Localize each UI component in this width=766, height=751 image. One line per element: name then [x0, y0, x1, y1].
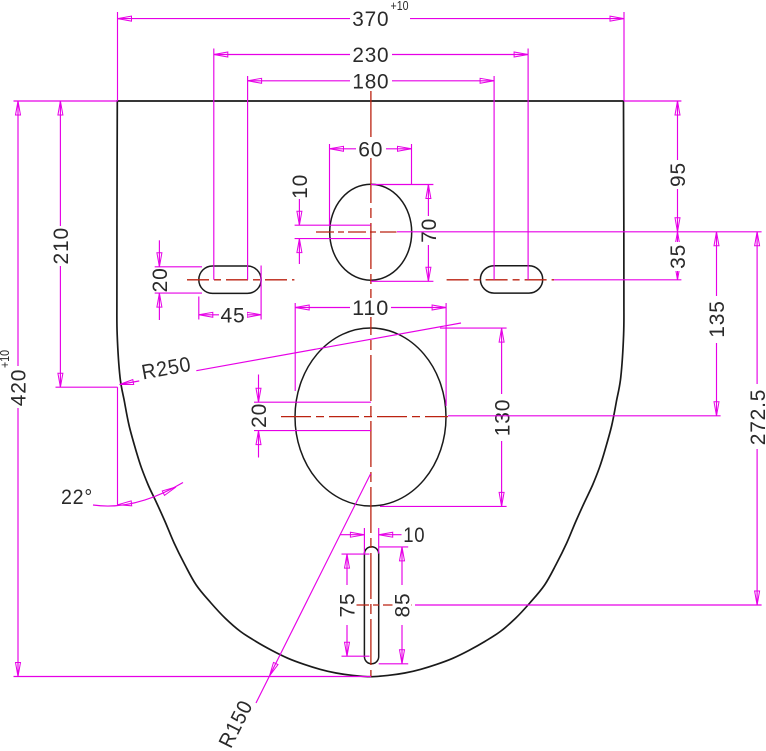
svg-text:45: 45 — [221, 304, 246, 327]
svg-text:10: 10 — [289, 174, 312, 199]
svg-text:135: 135 — [706, 300, 729, 337]
svg-text:85: 85 — [392, 593, 415, 618]
svg-text:180: 180 — [352, 70, 389, 93]
svg-text:230: 230 — [352, 44, 389, 67]
svg-text:420: 420 — [8, 369, 31, 406]
svg-text:60: 60 — [358, 138, 383, 161]
svg-text:110: 110 — [352, 297, 389, 320]
svg-text:+10: +10 — [391, 0, 409, 13]
svg-text:210: 210 — [50, 227, 73, 264]
svg-text:95: 95 — [667, 162, 690, 187]
svg-text:20: 20 — [248, 403, 271, 428]
svg-text:22°: 22° — [61, 486, 93, 509]
svg-text:370: 370 — [352, 8, 389, 31]
svg-text:20: 20 — [149, 267, 172, 292]
svg-text:130: 130 — [491, 399, 514, 436]
svg-text:+10: +10 — [0, 350, 12, 368]
svg-text:10: 10 — [403, 524, 425, 547]
svg-text:272.5: 272.5 — [747, 389, 766, 446]
svg-text:75: 75 — [337, 593, 360, 618]
svg-text:70: 70 — [418, 218, 441, 243]
svg-text:35: 35 — [667, 244, 690, 269]
